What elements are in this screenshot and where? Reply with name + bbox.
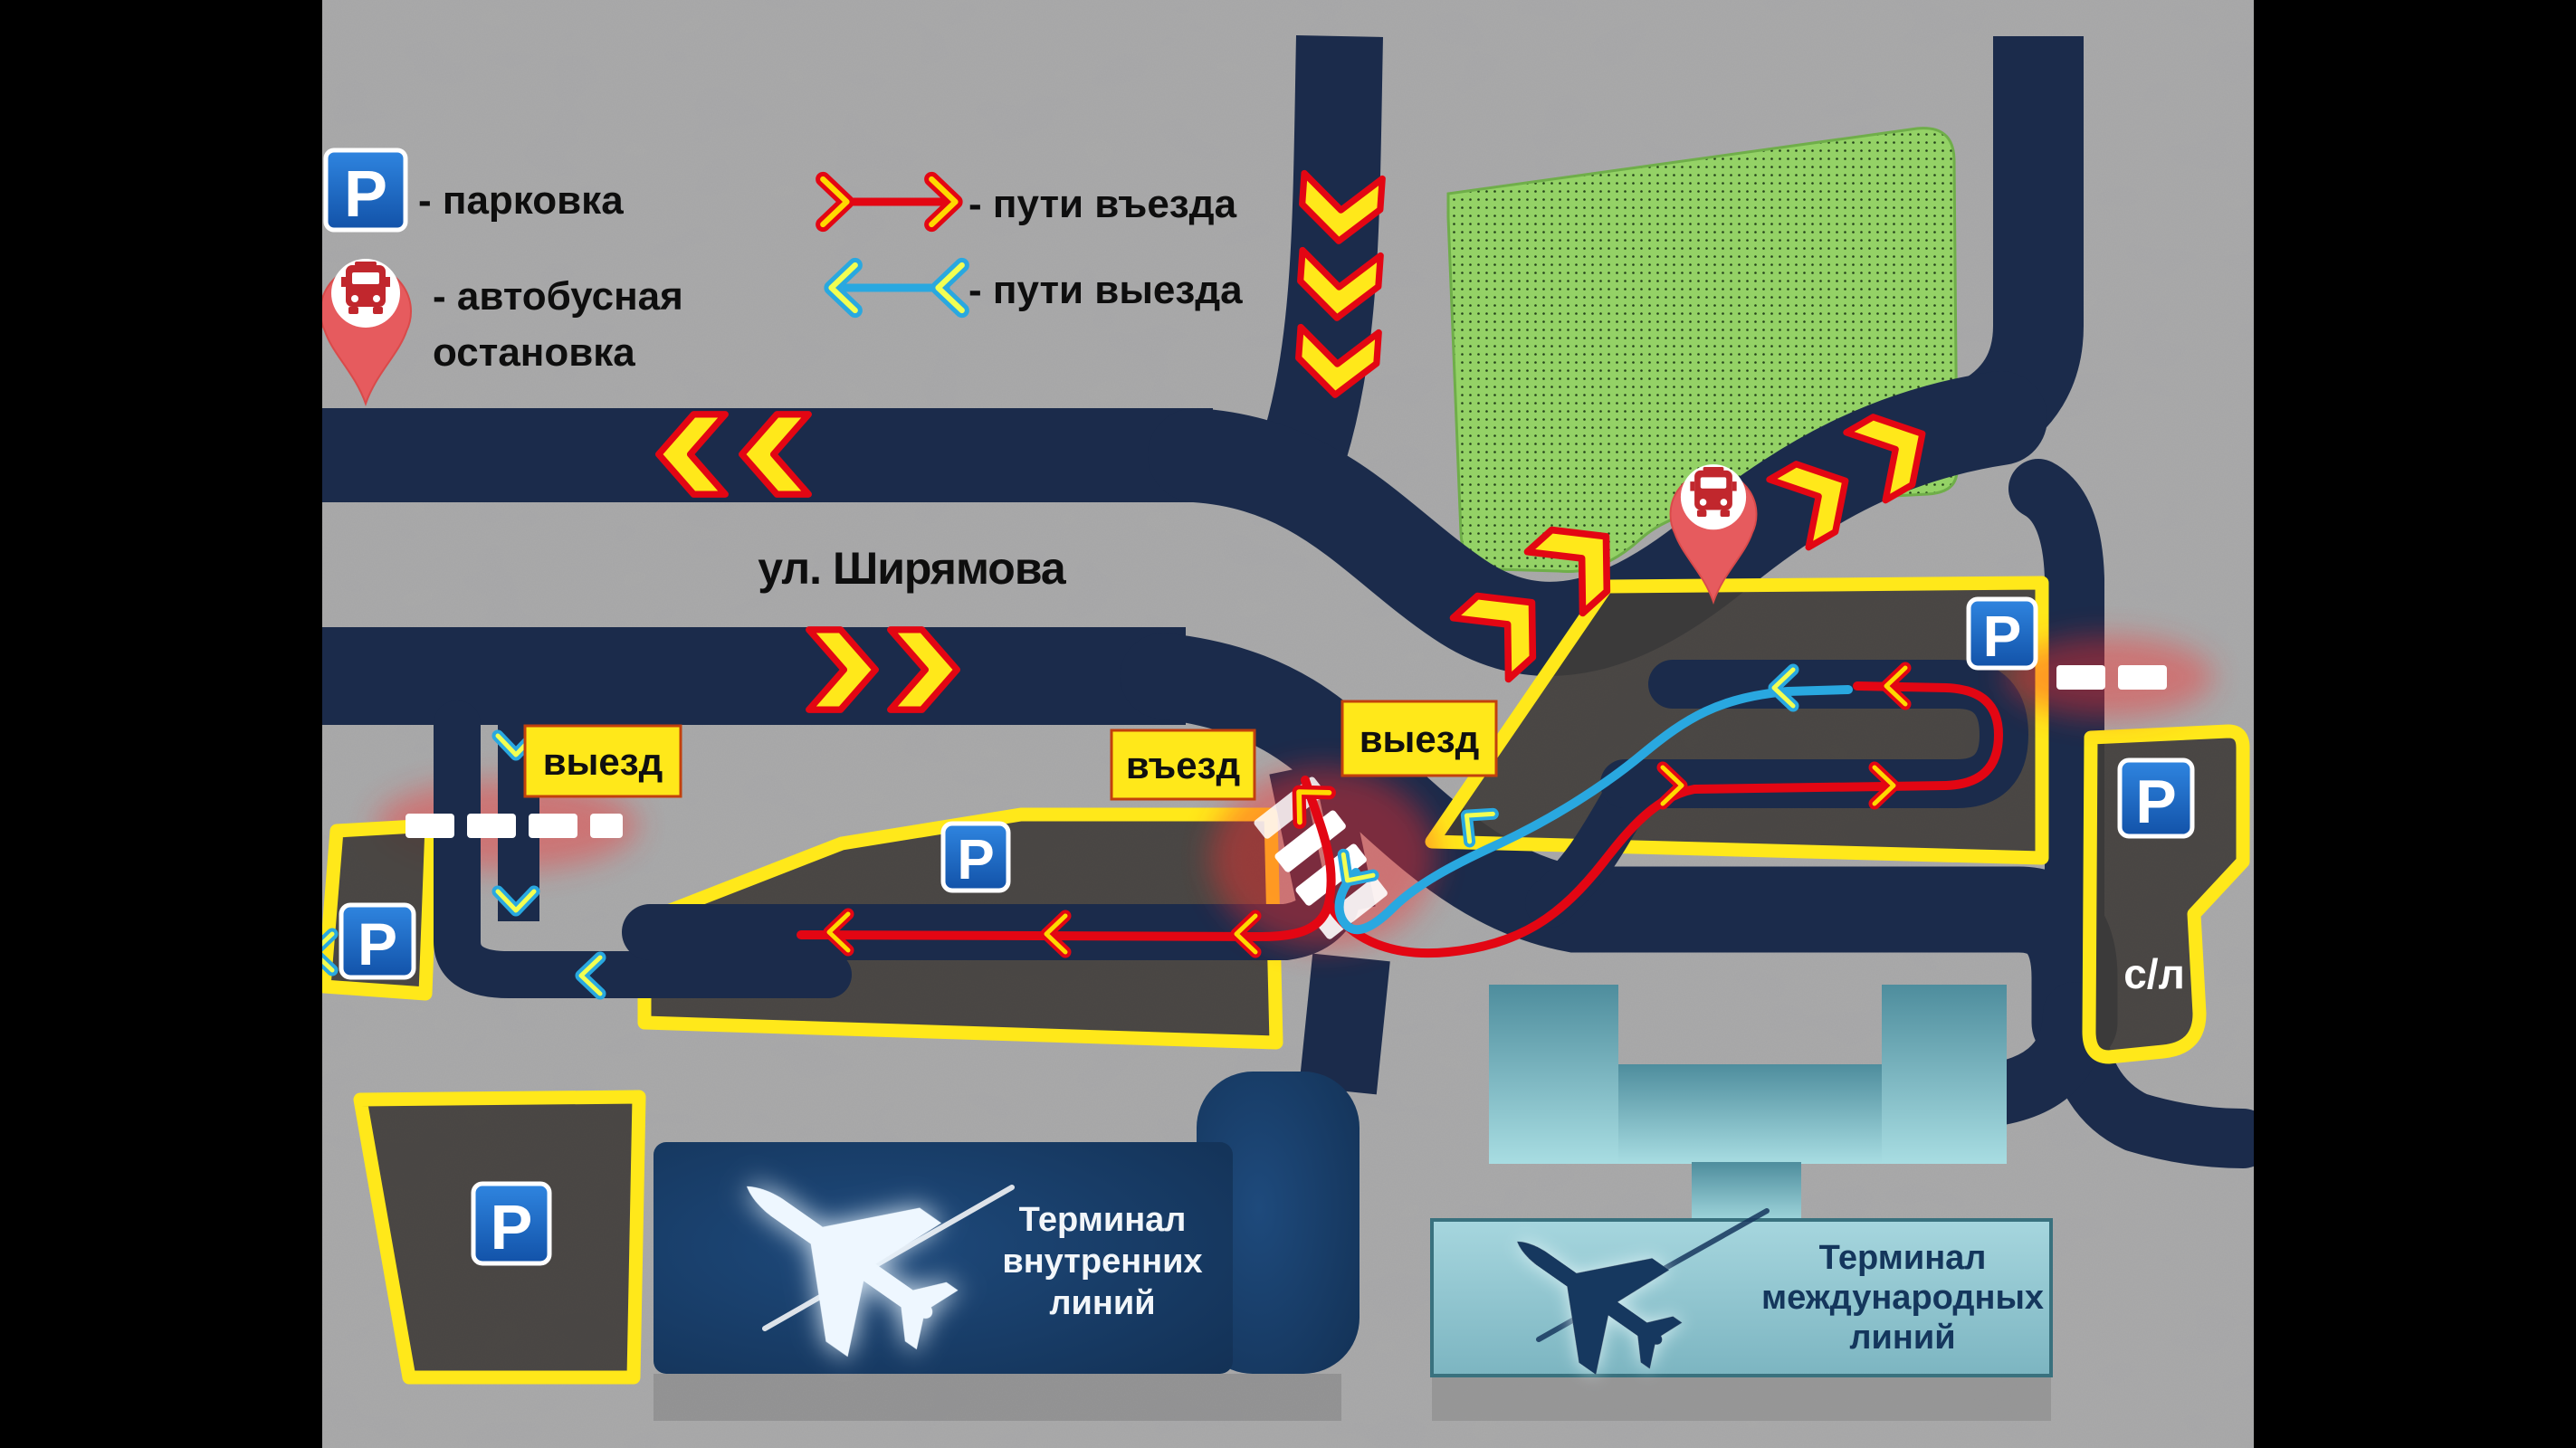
terminal-international-line3: линий <box>1849 1319 1955 1357</box>
crosswalk-left-dashes <box>405 814 623 838</box>
street-label: ул. Ширямова <box>758 543 1067 594</box>
parking-sign-central: P <box>943 824 1008 891</box>
parking-sign-east: P <box>1969 599 2036 669</box>
legend-parking-sign: P <box>326 150 405 231</box>
road-central-parking-lane <box>650 905 1331 932</box>
terminal-domestic-line1: Терминал <box>1019 1201 1187 1239</box>
letterbox-right <box>2254 0 2576 1448</box>
terminal-international-line2: международных <box>1761 1279 2044 1317</box>
svg-text:P: P <box>344 158 387 231</box>
entry-sign-center: въезд <box>1111 730 1255 799</box>
legend-parking-label: - парковка <box>418 178 624 223</box>
exit-sign-center-text: выезд <box>1360 718 1480 760</box>
svg-text:P: P <box>957 829 994 891</box>
road-terminal-access <box>1338 957 1351 1091</box>
terminal-domestic-line3: линий <box>1049 1284 1155 1322</box>
svg-text:P: P <box>2135 767 2176 836</box>
pier-stem <box>1692 1162 1801 1227</box>
legend-bus-label-line1: - автобусная <box>433 274 683 319</box>
legend-bus-label-line2: остановка <box>433 330 635 375</box>
entry-sign-center-text: въезд <box>1126 744 1240 786</box>
parking-sign-service: P <box>2120 760 2192 836</box>
terminal-domestic-line2: внутренних <box>1002 1243 1202 1281</box>
letterbox-left <box>0 0 322 1448</box>
exit-sign-left: выезд <box>525 726 681 796</box>
service-lot-label: с/л <box>2123 950 2185 997</box>
airport-scheme-map: Терминал внутренних линий Терминал между… <box>0 0 2576 1448</box>
terminal-international-line1: Терминал <box>1819 1239 1987 1277</box>
pier-right <box>1882 985 2007 1164</box>
legend-entry-label: - пути въезда <box>968 182 1237 226</box>
exit-sign-center: выезд <box>1342 701 1496 776</box>
terminal-international-shadow <box>1432 1376 2051 1421</box>
pier-center <box>1618 1064 1882 1164</box>
terminal-international: Терминал международных линий <box>1432 1189 2051 1421</box>
parking-sign-small-left: P <box>341 905 414 977</box>
svg-text:P: P <box>1983 604 2022 669</box>
svg-text:P: P <box>358 910 397 977</box>
parking-sign-southwest: P <box>473 1184 549 1263</box>
terminal-domestic-shadow <box>654 1374 1341 1421</box>
svg-text:P: P <box>491 1192 533 1262</box>
legend-exit-label: - пути выезда <box>968 268 1243 312</box>
exit-sign-left-text: выезд <box>543 740 663 783</box>
pier-left <box>1489 985 1618 1164</box>
